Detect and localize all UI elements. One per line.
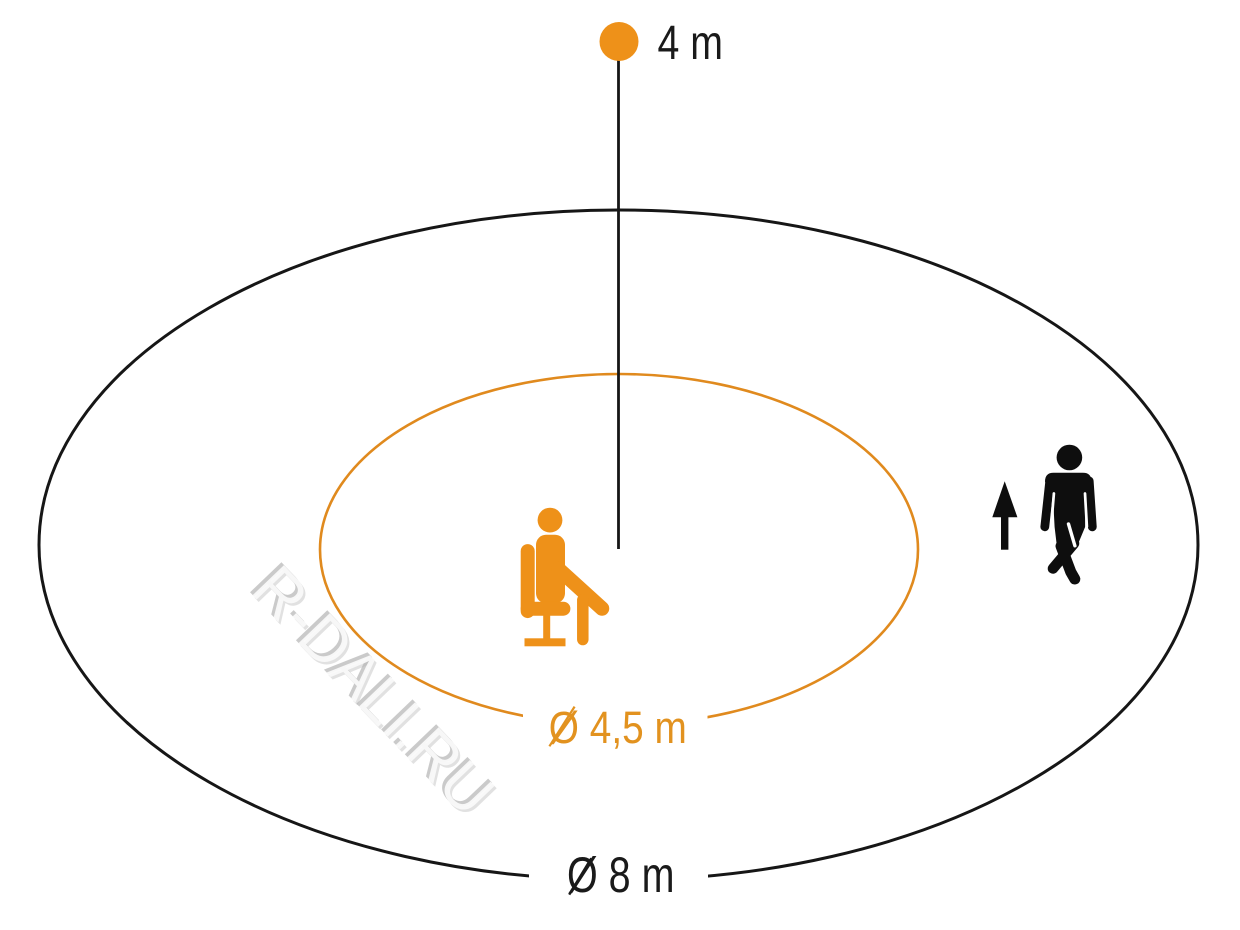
svg-text:4 m: 4 m [658, 16, 724, 70]
svg-text:Ø 8 m: Ø 8 m [567, 847, 675, 903]
svg-text:Ø 4,5 m: Ø 4,5 m [549, 702, 687, 753]
